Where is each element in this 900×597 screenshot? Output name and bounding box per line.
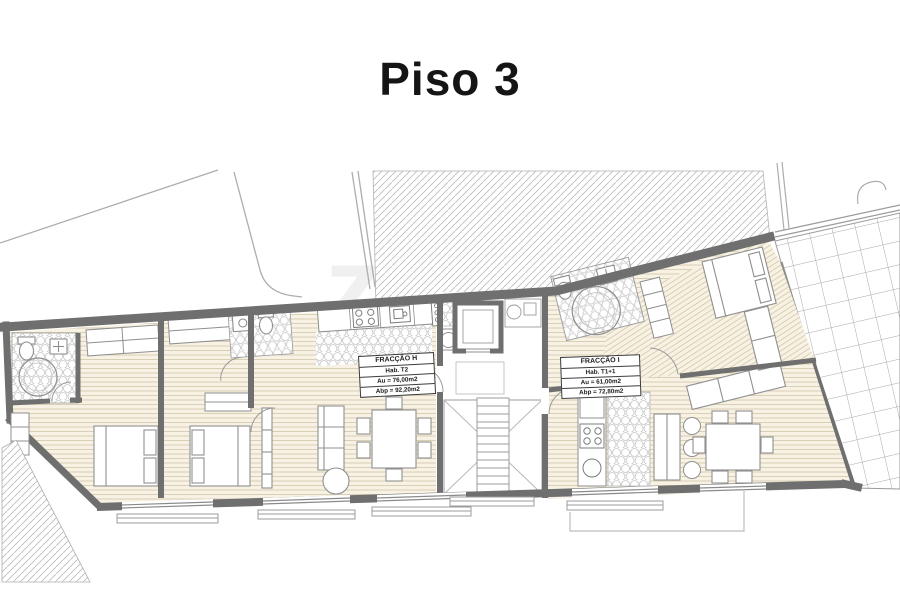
stairs — [444, 398, 542, 494]
floor-plan-page: Piso 3 zome — [0, 0, 900, 597]
fraction-label-left: FRACÇÃO H Hab. T2 Au = 76,00m2 Abp = 92,… — [358, 352, 436, 398]
chair — [712, 471, 728, 483]
sofa — [318, 406, 344, 470]
closet — [205, 393, 251, 411]
tile-strip — [608, 392, 650, 486]
chair — [418, 418, 431, 434]
sink-icon — [389, 306, 410, 323]
bed — [190, 426, 250, 486]
chair — [386, 469, 402, 481]
wardrobe — [86, 325, 160, 356]
stove-icon — [580, 424, 604, 448]
stove-icon — [352, 306, 378, 328]
chair — [357, 418, 370, 434]
chair — [418, 442, 431, 458]
bed — [94, 426, 158, 486]
stool — [684, 418, 701, 435]
left-wall — [6, 325, 10, 420]
pouf — [323, 468, 349, 494]
chair — [736, 471, 752, 483]
fraction-label-right: FRACÇÃO I Hab. T1+1 Au = 61,00m2 Abp = 7… — [560, 354, 641, 399]
floor-plan-drawing — [0, 0, 900, 597]
fraction-gross-area: Abp = 72,80m2 — [562, 385, 640, 398]
shelf — [262, 408, 272, 488]
chair — [386, 397, 402, 409]
utility-room — [505, 299, 541, 327]
sink-icon — [50, 339, 67, 354]
bathroom-1 — [12, 333, 78, 403]
kitchen-counter — [578, 392, 606, 486]
entrance-step — [450, 497, 534, 506]
neighbor-outlines-top-left — [0, 170, 375, 297]
chair — [712, 411, 728, 423]
chair — [761, 437, 773, 453]
chair — [736, 411, 752, 423]
chair — [357, 442, 370, 458]
toilet-icon — [18, 337, 35, 360]
island — [654, 414, 680, 480]
stool — [684, 462, 701, 479]
chair — [693, 437, 705, 453]
elevator — [455, 303, 501, 355]
